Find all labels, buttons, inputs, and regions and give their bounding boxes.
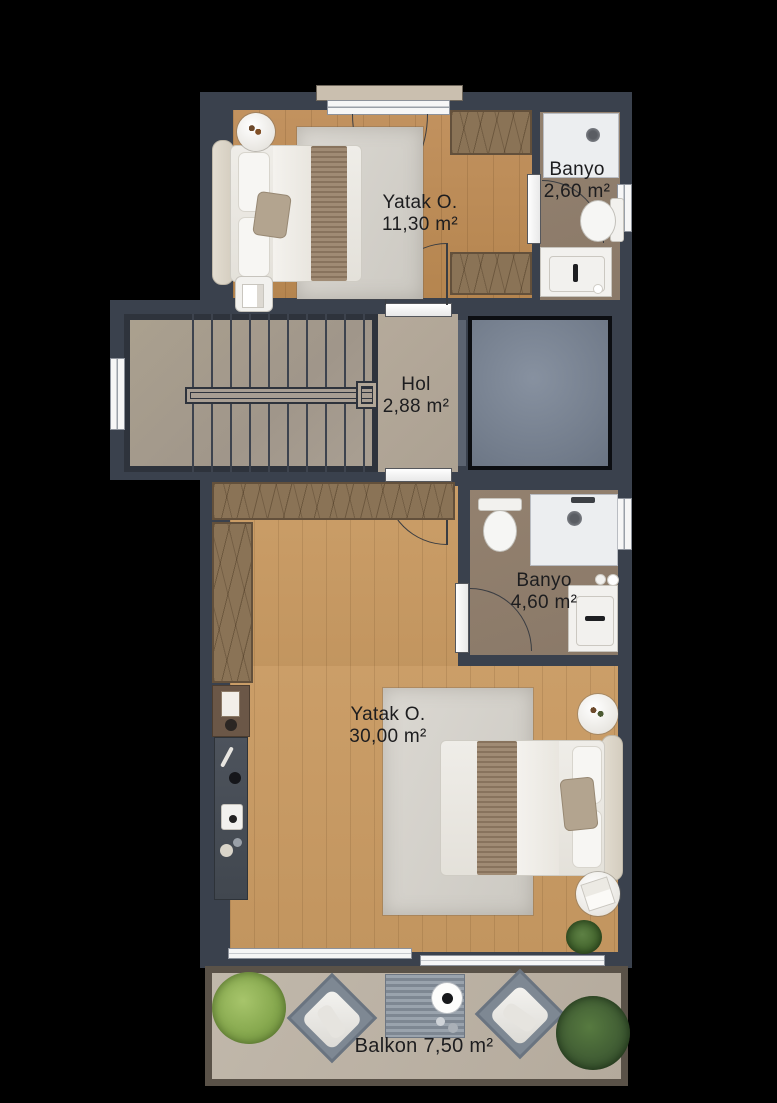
laptop-icon [221, 804, 243, 830]
balcony-text: Balkon 7,50 m² [304, 1035, 544, 1057]
bedroom2-door [385, 468, 452, 482]
stairwell-window [110, 358, 125, 430]
faucet-icon [585, 616, 605, 621]
bathroom2-label: Banyo 4,60 m² [484, 570, 604, 614]
plant-twigs-icon [247, 121, 263, 139]
toilet-bowl-icon [483, 510, 517, 552]
faucet-icon [573, 264, 578, 282]
balcony-sliding-door-left [228, 948, 412, 959]
open-book-icon [580, 876, 615, 911]
bedroom1-side-table [237, 113, 275, 151]
bedroom1-wardrobe-bottom [450, 252, 532, 295]
bedroom2-plant [566, 920, 602, 954]
hall-name: Hol [356, 374, 476, 396]
bedroom2-name: Yatak O. [308, 704, 468, 726]
bathroom2-shower [530, 494, 618, 566]
bathroom2-toilet [476, 498, 524, 552]
balcony-sliding-door-right [420, 955, 605, 966]
bathroom2-door [455, 583, 469, 653]
photo-frame-icon [221, 691, 240, 717]
book-icon [242, 284, 264, 308]
bed2-accent-pillow [559, 776, 598, 831]
bathroom1-area: 2,60 m² [517, 181, 637, 203]
bedroom1-door [385, 303, 452, 317]
bed1-accent-pillow [252, 191, 292, 239]
hall-area: 2,88 m² [356, 396, 476, 418]
balcony-plant-right [556, 996, 630, 1070]
floor-plan: Yatak O. 11,30 m² Banyo 2,60 m² Hol 2,88… [0, 0, 777, 1103]
bedroom2-desk [214, 737, 248, 900]
bathroom1-name: Banyo [517, 159, 637, 181]
balcony-plant-left [212, 972, 286, 1044]
bedroom1-window-sill [316, 85, 463, 101]
bedroom1-window [327, 100, 450, 115]
bathroom1-label: Banyo 2,60 m² [517, 159, 637, 203]
cup-icon [442, 993, 453, 1004]
stair-rail [185, 387, 378, 404]
bedroom1-wardrobe-top [450, 110, 532, 155]
bedroom1-label: Yatak O. 11,30 m² [340, 192, 500, 236]
balcony-table [385, 974, 465, 1038]
bedroom1-area: 11,30 m² [340, 214, 500, 236]
bedroom2-nightstand-top [578, 694, 618, 734]
bathroom2-name: Banyo [484, 570, 604, 592]
balcony-label: Balkon 7,50 m² [304, 1035, 544, 1057]
elevator-shaft [468, 316, 612, 470]
hall-label: Hol 2,88 m² [356, 374, 476, 418]
bathroom2-area: 4,60 m² [484, 592, 604, 614]
bedroom1-nightstand [235, 276, 273, 312]
bedroom2-nightstand-bottom [576, 872, 620, 916]
bedroom2-wardrobe-top [212, 482, 455, 520]
bathroom1-toilet [580, 196, 626, 246]
bedroom2-cabinet [212, 685, 250, 737]
bedroom2-area: 30,00 m² [308, 726, 468, 748]
shower-head-icon [586, 128, 600, 142]
bedroom2-label: Yatak O. 30,00 m² [308, 704, 468, 748]
shower-head-icon [567, 511, 582, 526]
bathroom1-vanity [540, 247, 612, 297]
bedroom1-door-leaf [446, 243, 448, 305]
bedroom2-wardrobe-left [212, 522, 253, 683]
bathroom2-window [617, 498, 632, 550]
bedroom1-name: Yatak O. [340, 192, 500, 214]
toilet-bowl-icon [580, 200, 616, 242]
plant-twigs-icon [588, 703, 606, 721]
